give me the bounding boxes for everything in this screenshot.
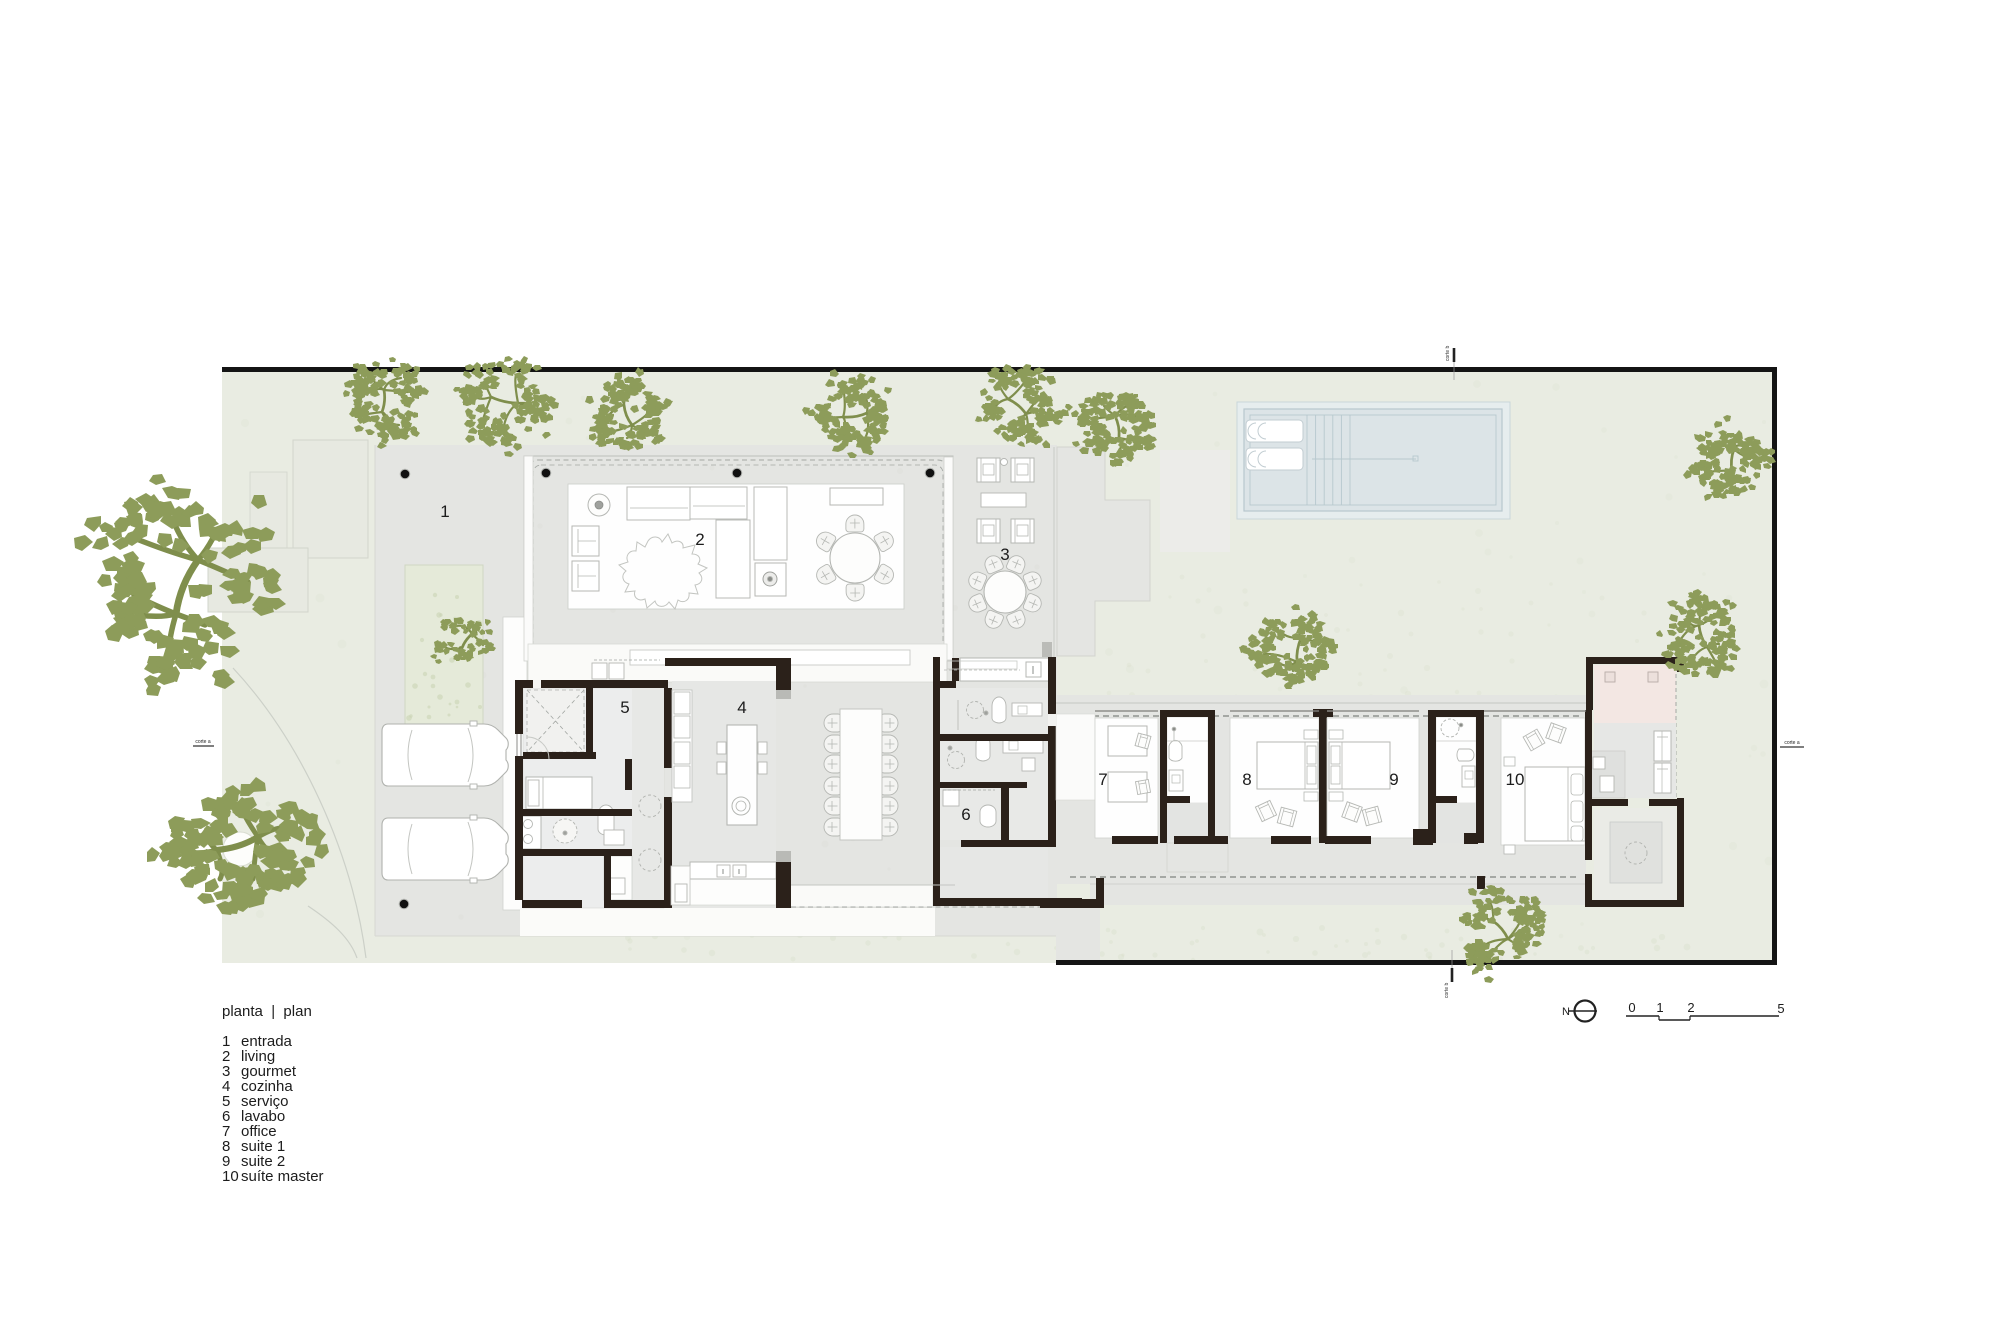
svg-text:9: 9: [1389, 770, 1398, 789]
svg-text:0: 0: [1628, 1000, 1635, 1015]
svg-text:planta | plan: planta | plan: [222, 1003, 312, 1020]
svg-text:corte b: corte b: [1444, 982, 1450, 998]
svg-text:8: 8: [1242, 770, 1251, 789]
svg-text:10: 10: [1506, 770, 1525, 789]
svg-text:5: 5: [1777, 1001, 1784, 1016]
svg-text:10: 10: [222, 1168, 239, 1185]
svg-text:7: 7: [1098, 770, 1107, 789]
svg-text:3: 3: [1000, 545, 1009, 564]
svg-text:2: 2: [1687, 1000, 1694, 1015]
svg-text:1: 1: [1656, 1000, 1663, 1015]
svg-text:N: N: [1562, 1006, 1570, 1018]
svg-text:corte a: corte a: [1784, 740, 1800, 746]
svg-text:corte b: corte b: [1445, 345, 1451, 361]
svg-text:2: 2: [695, 530, 704, 549]
svg-text:6: 6: [961, 805, 970, 824]
svg-text:corte a: corte a: [195, 739, 211, 745]
svg-text:suíte master: suíte master: [241, 1168, 324, 1185]
svg-text:4: 4: [737, 698, 746, 717]
svg-text:5: 5: [620, 698, 629, 717]
svg-text:1: 1: [440, 502, 449, 521]
